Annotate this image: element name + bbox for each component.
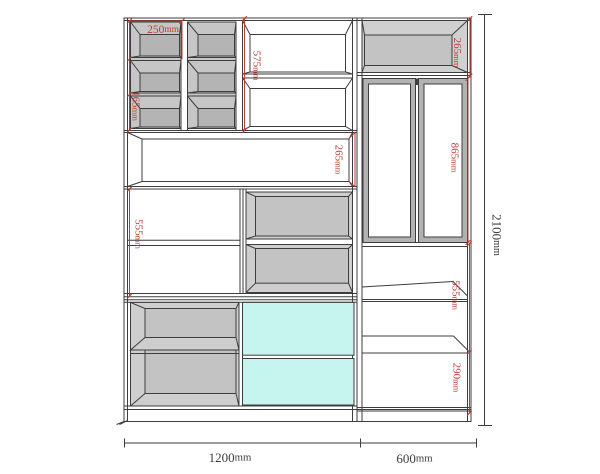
svg-text:265mm: 265mm xyxy=(451,38,463,68)
svg-text:555mm: 555mm xyxy=(133,219,145,249)
svg-text:290mm: 290mm xyxy=(451,363,463,393)
svg-text:865mm: 865mm xyxy=(449,143,461,173)
svg-text:1200mm: 1200mm xyxy=(209,450,252,465)
svg-text:165mm: 165mm xyxy=(130,91,142,121)
svg-text:575mm: 575mm xyxy=(251,51,263,81)
svg-text:600mm: 600mm xyxy=(396,451,433,466)
svg-text:250mm: 250mm xyxy=(147,24,180,36)
svg-text:555mm: 555mm xyxy=(450,280,462,310)
svg-text:265mm: 265mm xyxy=(333,145,345,175)
svg-text:2100mm: 2100mm xyxy=(490,214,505,256)
